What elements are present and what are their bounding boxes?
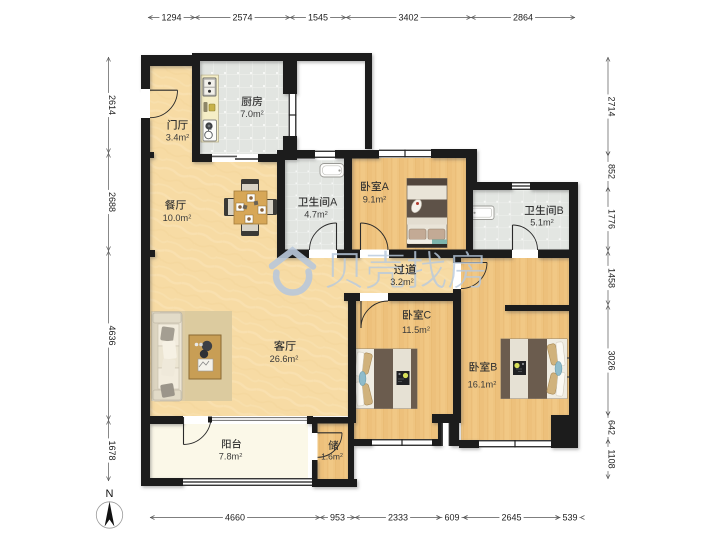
svg-text:2574: 2574: [232, 13, 252, 23]
svg-text:3.2m2: 3.2m2: [390, 277, 414, 287]
svg-text:1678: 1678: [107, 440, 117, 460]
svg-text:2333: 2333: [388, 513, 408, 523]
svg-text:1.6m2: 1.6m2: [321, 452, 343, 462]
svg-text:B: B: [557, 205, 564, 217]
svg-text:609: 609: [444, 513, 459, 523]
svg-text:2645: 2645: [501, 513, 521, 523]
svg-text:4660: 4660: [225, 513, 245, 523]
svg-text:2688: 2688: [107, 192, 117, 212]
svg-text:9.1m2: 9.1m2: [363, 194, 387, 204]
svg-text:539: 539: [562, 513, 577, 523]
svg-text:3026: 3026: [606, 350, 616, 370]
svg-text:642: 642: [606, 420, 616, 435]
svg-text:3.4m2: 3.4m2: [166, 132, 190, 142]
svg-text:852: 852: [606, 164, 616, 179]
svg-text:A: A: [382, 181, 390, 193]
svg-text:953: 953: [330, 513, 345, 523]
svg-text:N: N: [106, 488, 114, 500]
svg-text:B: B: [490, 361, 497, 373]
svg-text:7.0m2: 7.0m2: [240, 109, 264, 119]
svg-text:1545: 1545: [308, 13, 328, 23]
svg-text:16.1m2: 16.1m2: [468, 379, 497, 389]
svg-text:26.6m2: 26.6m2: [270, 354, 299, 364]
svg-text:C: C: [423, 309, 431, 321]
svg-text:2864: 2864: [513, 13, 533, 23]
svg-text:A: A: [330, 196, 338, 208]
svg-text:1776: 1776: [606, 209, 616, 229]
svg-text:1458: 1458: [606, 268, 616, 288]
svg-text:1294: 1294: [161, 13, 181, 23]
svg-text:4.7m2: 4.7m2: [304, 209, 328, 219]
svg-text:7.8m2: 7.8m2: [219, 451, 243, 461]
svg-text:5.1m2: 5.1m2: [530, 217, 554, 227]
svg-text:2614: 2614: [107, 95, 117, 115]
svg-text:10.0m2: 10.0m2: [163, 213, 192, 223]
svg-text:1108: 1108: [606, 449, 616, 468]
svg-text:2714: 2714: [606, 96, 616, 116]
svg-text:4636: 4636: [107, 325, 117, 345]
svg-text:3402: 3402: [398, 13, 418, 23]
svg-text:11.5m2: 11.5m2: [402, 325, 430, 335]
